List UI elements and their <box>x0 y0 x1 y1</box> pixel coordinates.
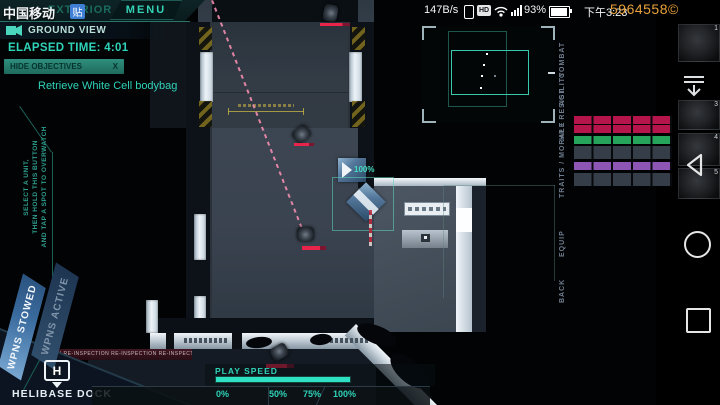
door-panel <box>194 214 206 260</box>
net-speed-label: 147B/s <box>424 4 458 16</box>
speed-tick-50[interactable]: 50% <box>269 389 287 399</box>
hide-objectives-button[interactable]: HIDE OBJECTIVES X <box>4 59 124 74</box>
minimap-unit-dot <box>481 75 483 77</box>
hazard-stripes <box>199 101 212 127</box>
minimap-tick <box>548 72 555 74</box>
ledge-slot <box>232 333 242 349</box>
stat-bar-empty-2 <box>574 173 672 186</box>
floor-seam <box>214 92 356 93</box>
hint-line: AND TAP A SPOT TO OVERWATCH <box>41 126 48 247</box>
play-speed-fill <box>216 377 350 382</box>
unit-body <box>269 342 291 363</box>
ground-view-label: GROUND VIEW <box>28 25 106 36</box>
android-back-button[interactable] <box>682 152 708 183</box>
overwatch-hint: SELECT A UNIT, THEN HOLD THIS BUTTON AND… <box>14 128 56 246</box>
room-outline-v2 <box>554 185 555 281</box>
recorder-watermark: 5964558© <box>610 1 679 17</box>
carrier-label: 中国移动 <box>3 3 55 22</box>
battery-percent: 93% <box>524 4 546 16</box>
console-desk[interactable] <box>402 230 448 248</box>
play-speed-panel <box>92 386 430 405</box>
unit-body <box>290 123 312 145</box>
stat-bar-empty-1 <box>574 146 672 159</box>
close-icon: X <box>113 62 118 71</box>
hint-line: SELECT A UNIT, <box>23 159 30 216</box>
stat-bar-purple <box>574 162 672 170</box>
android-home-button[interactable] <box>684 231 711 258</box>
minimap-view-rect <box>451 50 529 95</box>
unit-health-bar <box>294 143 314 146</box>
unit-health-bar <box>302 246 326 250</box>
elapsed-time: ELAPSED TIME: 4:01 <box>8 42 128 54</box>
minimap-unit-dot <box>486 53 488 55</box>
unit-body <box>322 3 339 22</box>
menu-item-equip[interactable]: EQUIP <box>559 221 573 257</box>
door-panel <box>146 300 158 333</box>
menu-item-traits-morale[interactable]: TRAITS / MORALE <box>559 134 573 198</box>
selection-bracket <box>332 177 394 231</box>
hd-icon: HD <box>477 5 491 16</box>
ledge-signage <box>184 338 228 343</box>
crate-progress-label: 100% <box>354 165 374 174</box>
play-speed-label: PLAY SPEED <box>215 366 278 376</box>
floor-marking-red <box>369 210 372 246</box>
ledge-signage <box>330 338 368 343</box>
objective-text: Retrieve White Cell bodybag <box>38 80 177 92</box>
minimap-bracket <box>541 109 555 123</box>
camera-icon <box>6 25 23 36</box>
unit-health-bar <box>320 23 350 26</box>
wifi-icon <box>494 4 508 22</box>
dimension-tick <box>303 108 304 115</box>
helipad-icon: H <box>44 360 70 388</box>
room-door <box>456 208 472 232</box>
speed-tick-75[interactable]: 75% <box>303 389 321 399</box>
signal-icon <box>511 5 522 16</box>
minimap-bracket <box>422 109 436 123</box>
dimension-line <box>228 111 304 112</box>
stat-bar-hp-2 <box>574 125 672 133</box>
hide-objectives-label: HIDE OBJECTIVES <box>10 62 82 71</box>
dimension-annotation <box>238 104 294 107</box>
minimap-unit-dot <box>494 75 496 77</box>
portrait-number: 3 <box>714 101 718 108</box>
unit-body <box>297 227 314 241</box>
portrait-number: 1 <box>714 25 718 32</box>
top-room-floor <box>212 22 358 128</box>
door-panel <box>349 52 362 102</box>
bottom-wall <box>148 318 374 334</box>
vibrate-icon <box>464 5 474 19</box>
ground-view-tab[interactable]: GROUND VIEW <box>0 22 170 39</box>
dimension-tick <box>228 108 229 115</box>
minimap[interactable] <box>422 26 555 123</box>
carrier-badge: 贴 <box>70 4 85 19</box>
helipad-letter: H <box>44 360 70 381</box>
hazard-stripes <box>352 101 365 127</box>
collapse-squad-icon[interactable] <box>682 74 706 103</box>
room-outline-v <box>443 186 444 298</box>
hazard-stripes <box>352 27 365 50</box>
unit-portrait-3[interactable]: 3 <box>678 100 720 130</box>
room-outer-wall <box>472 186 486 332</box>
minimap-unit-dot <box>480 87 482 89</box>
android-recents-button[interactable] <box>686 308 711 333</box>
door-panel <box>200 52 213 102</box>
portrait-number: 5 <box>714 169 718 176</box>
game-screen: 100% RE-INSPECTION RE-INSPECTION RE-INSP… <box>0 0 720 405</box>
room-outline-h <box>443 185 555 186</box>
console-icon <box>421 234 430 242</box>
minimap-unit-dot <box>483 64 485 66</box>
battery-icon <box>549 6 570 18</box>
unit-soldier[interactable] <box>271 345 293 365</box>
menu-item-back[interactable]: BACK <box>559 273 573 303</box>
speed-tick-100[interactable]: 100% <box>333 389 356 399</box>
hazard-stripes <box>199 27 212 50</box>
hint-line: THEN HOLD THIS BUTTON <box>32 140 39 234</box>
play-speed-slider[interactable] <box>215 376 351 383</box>
minimap-bracket <box>541 26 555 40</box>
menu-button[interactable]: MENU <box>110 0 182 20</box>
unit-soldier[interactable] <box>297 227 319 247</box>
stat-bar-hp-1 <box>574 116 672 124</box>
unit-portrait-1[interactable]: 1 <box>678 24 720 62</box>
speed-tick-0[interactable]: 0% <box>216 389 229 399</box>
stat-bar-green <box>574 136 672 144</box>
ledge-slot <box>166 333 174 349</box>
minimap-bracket <box>422 26 436 40</box>
portrait-number: 4 <box>714 134 718 141</box>
